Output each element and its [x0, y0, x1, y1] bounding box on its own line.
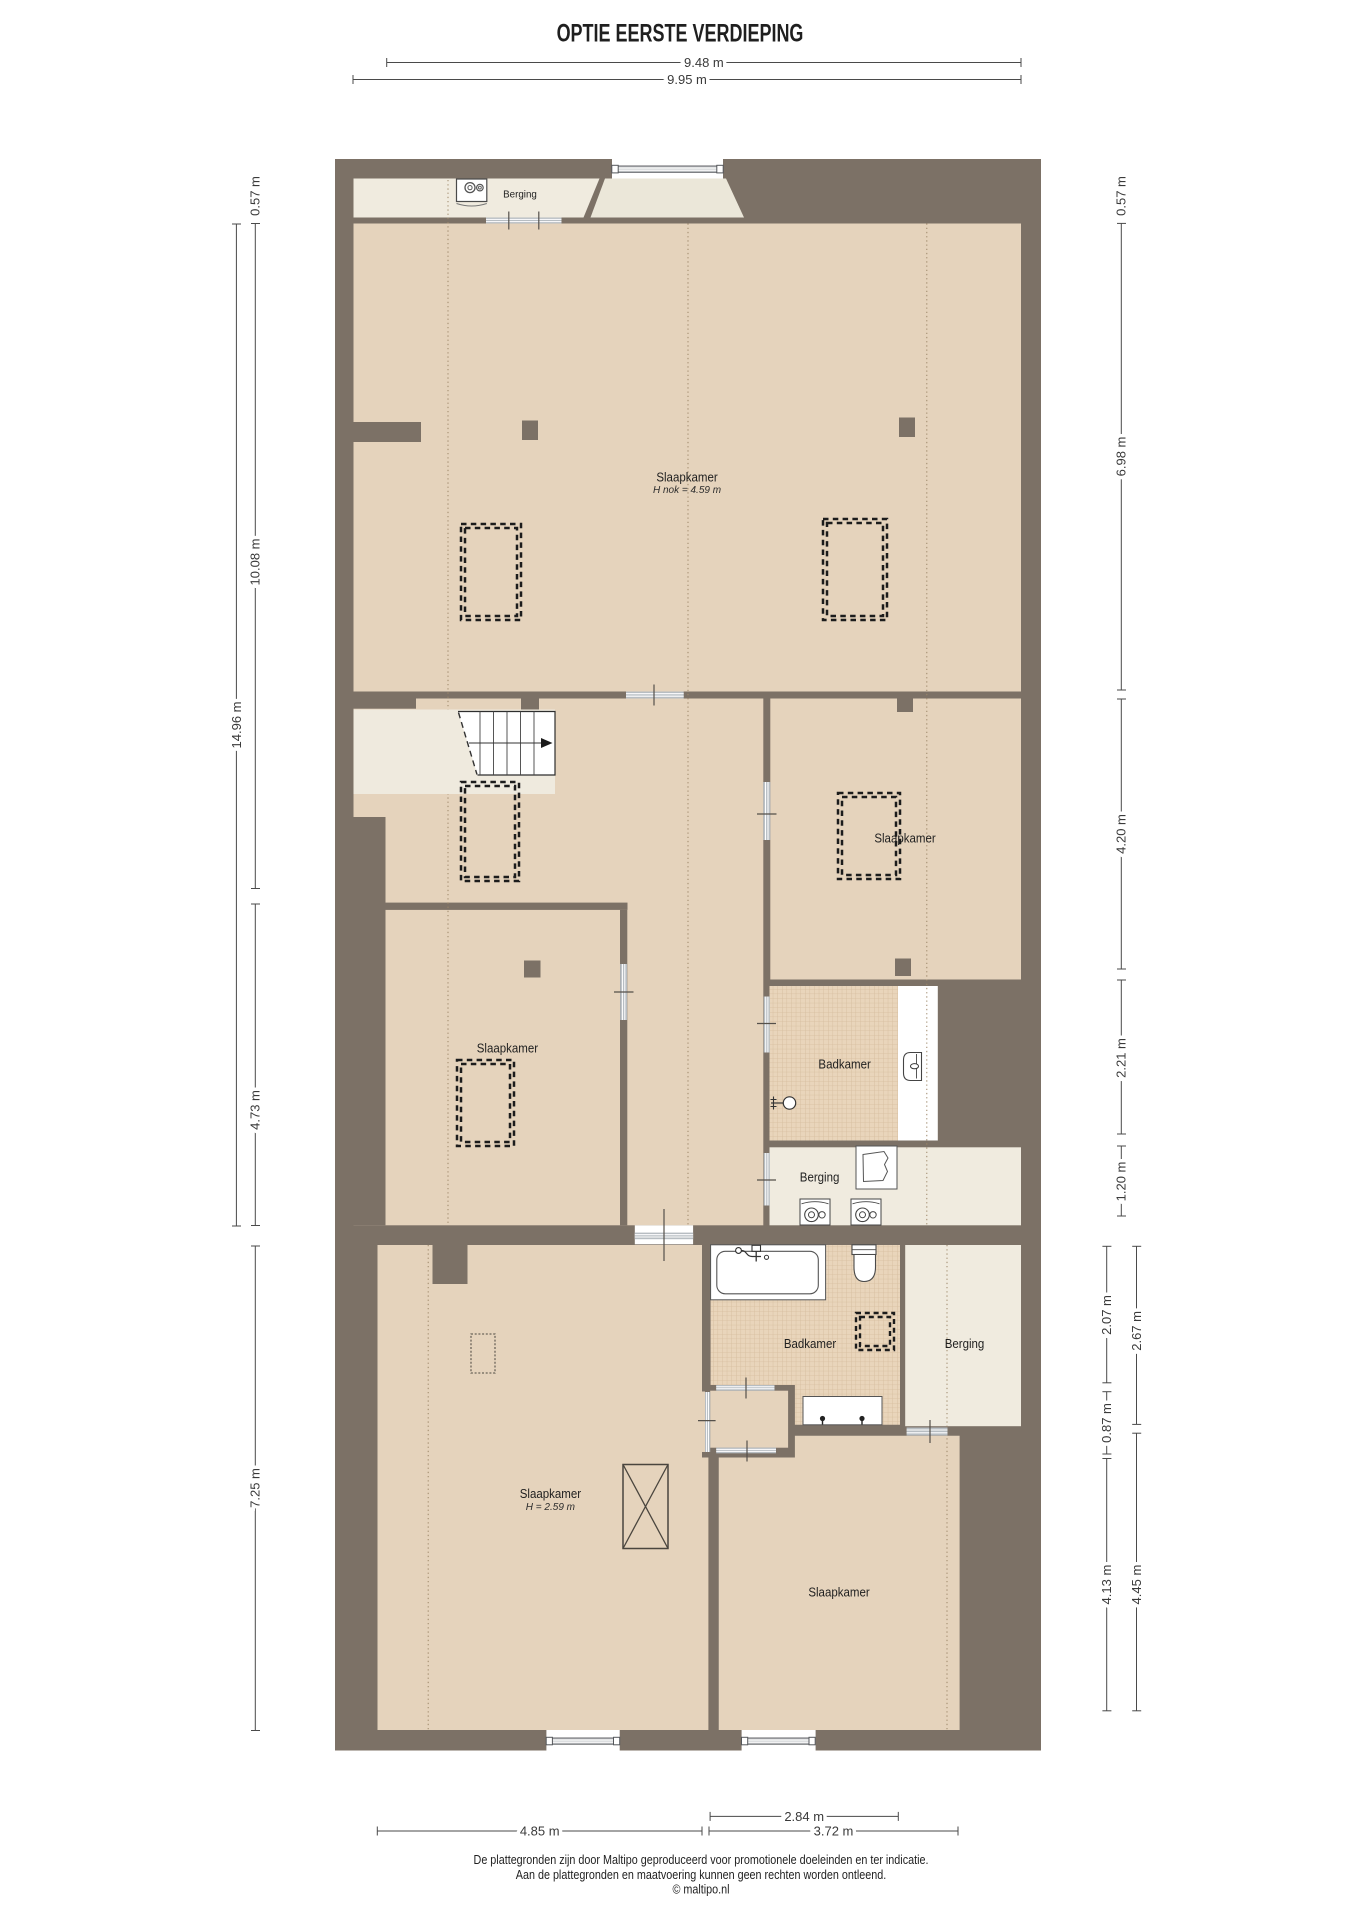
svg-text:2.67 m: 2.67 m — [1129, 1311, 1144, 1351]
svg-text:2.07 m: 2.07 m — [1099, 1295, 1114, 1335]
svg-text:10.08 m: 10.08 m — [248, 539, 263, 586]
svg-text:9.48 m: 9.48 m — [684, 55, 724, 70]
svg-text:1.20 m: 1.20 m — [1114, 1162, 1129, 1202]
svg-text:Berging: Berging — [800, 1170, 840, 1185]
svg-text:Slaapkamer: Slaapkamer — [520, 1487, 581, 1502]
svg-text:9.95 m: 9.95 m — [667, 72, 707, 87]
svg-text:OPTIE EERSTE VERDIEPING: OPTIE EERSTE VERDIEPING — [557, 19, 804, 48]
svg-text:4.20 m: 4.20 m — [1114, 814, 1129, 854]
svg-text:6.98 m: 6.98 m — [1114, 437, 1129, 477]
svg-text:7.25 m: 7.25 m — [248, 1468, 263, 1508]
svg-text:Slaapkamer: Slaapkamer — [656, 470, 717, 485]
svg-text:Slaapkamer: Slaapkamer — [808, 1585, 869, 1600]
svg-text:H = 2.59 m: H = 2.59 m — [526, 1502, 575, 1513]
svg-text:© maltipo.nl: © maltipo.nl — [672, 1882, 729, 1897]
svg-text:4.13 m: 4.13 m — [1099, 1565, 1114, 1605]
svg-text:4.85 m: 4.85 m — [520, 1824, 560, 1839]
svg-text:Berging: Berging — [945, 1337, 985, 1352]
svg-text:Slaapkamer: Slaapkamer — [874, 831, 935, 846]
svg-text:4.45 m: 4.45 m — [1129, 1565, 1144, 1605]
svg-text:H nok = 4.59 m: H nok = 4.59 m — [653, 485, 721, 496]
svg-text:14.96 m: 14.96 m — [229, 702, 244, 749]
svg-text:Berging: Berging — [503, 190, 537, 201]
svg-text:0.57 m: 0.57 m — [1114, 176, 1129, 216]
svg-text:De plattegronden zijn door Mal: De plattegronden zijn door Maltipo gepro… — [474, 1852, 929, 1867]
svg-text:Slaapkamer: Slaapkamer — [477, 1041, 538, 1056]
svg-text:0.87 m: 0.87 m — [1099, 1403, 1114, 1443]
svg-text:4.73 m: 4.73 m — [248, 1090, 263, 1130]
svg-text:2.21 m: 2.21 m — [1114, 1038, 1129, 1078]
svg-text:0.57 m: 0.57 m — [248, 176, 263, 216]
svg-text:Aan de plattegronden en maatvo: Aan de plattegronden en maatvoering kunn… — [516, 1867, 886, 1882]
svg-text:Badkamer: Badkamer — [784, 1337, 836, 1352]
svg-text:2.84 m: 2.84 m — [784, 1809, 824, 1824]
svg-text:3.72 m: 3.72 m — [814, 1824, 854, 1839]
svg-text:Badkamer: Badkamer — [818, 1057, 870, 1072]
